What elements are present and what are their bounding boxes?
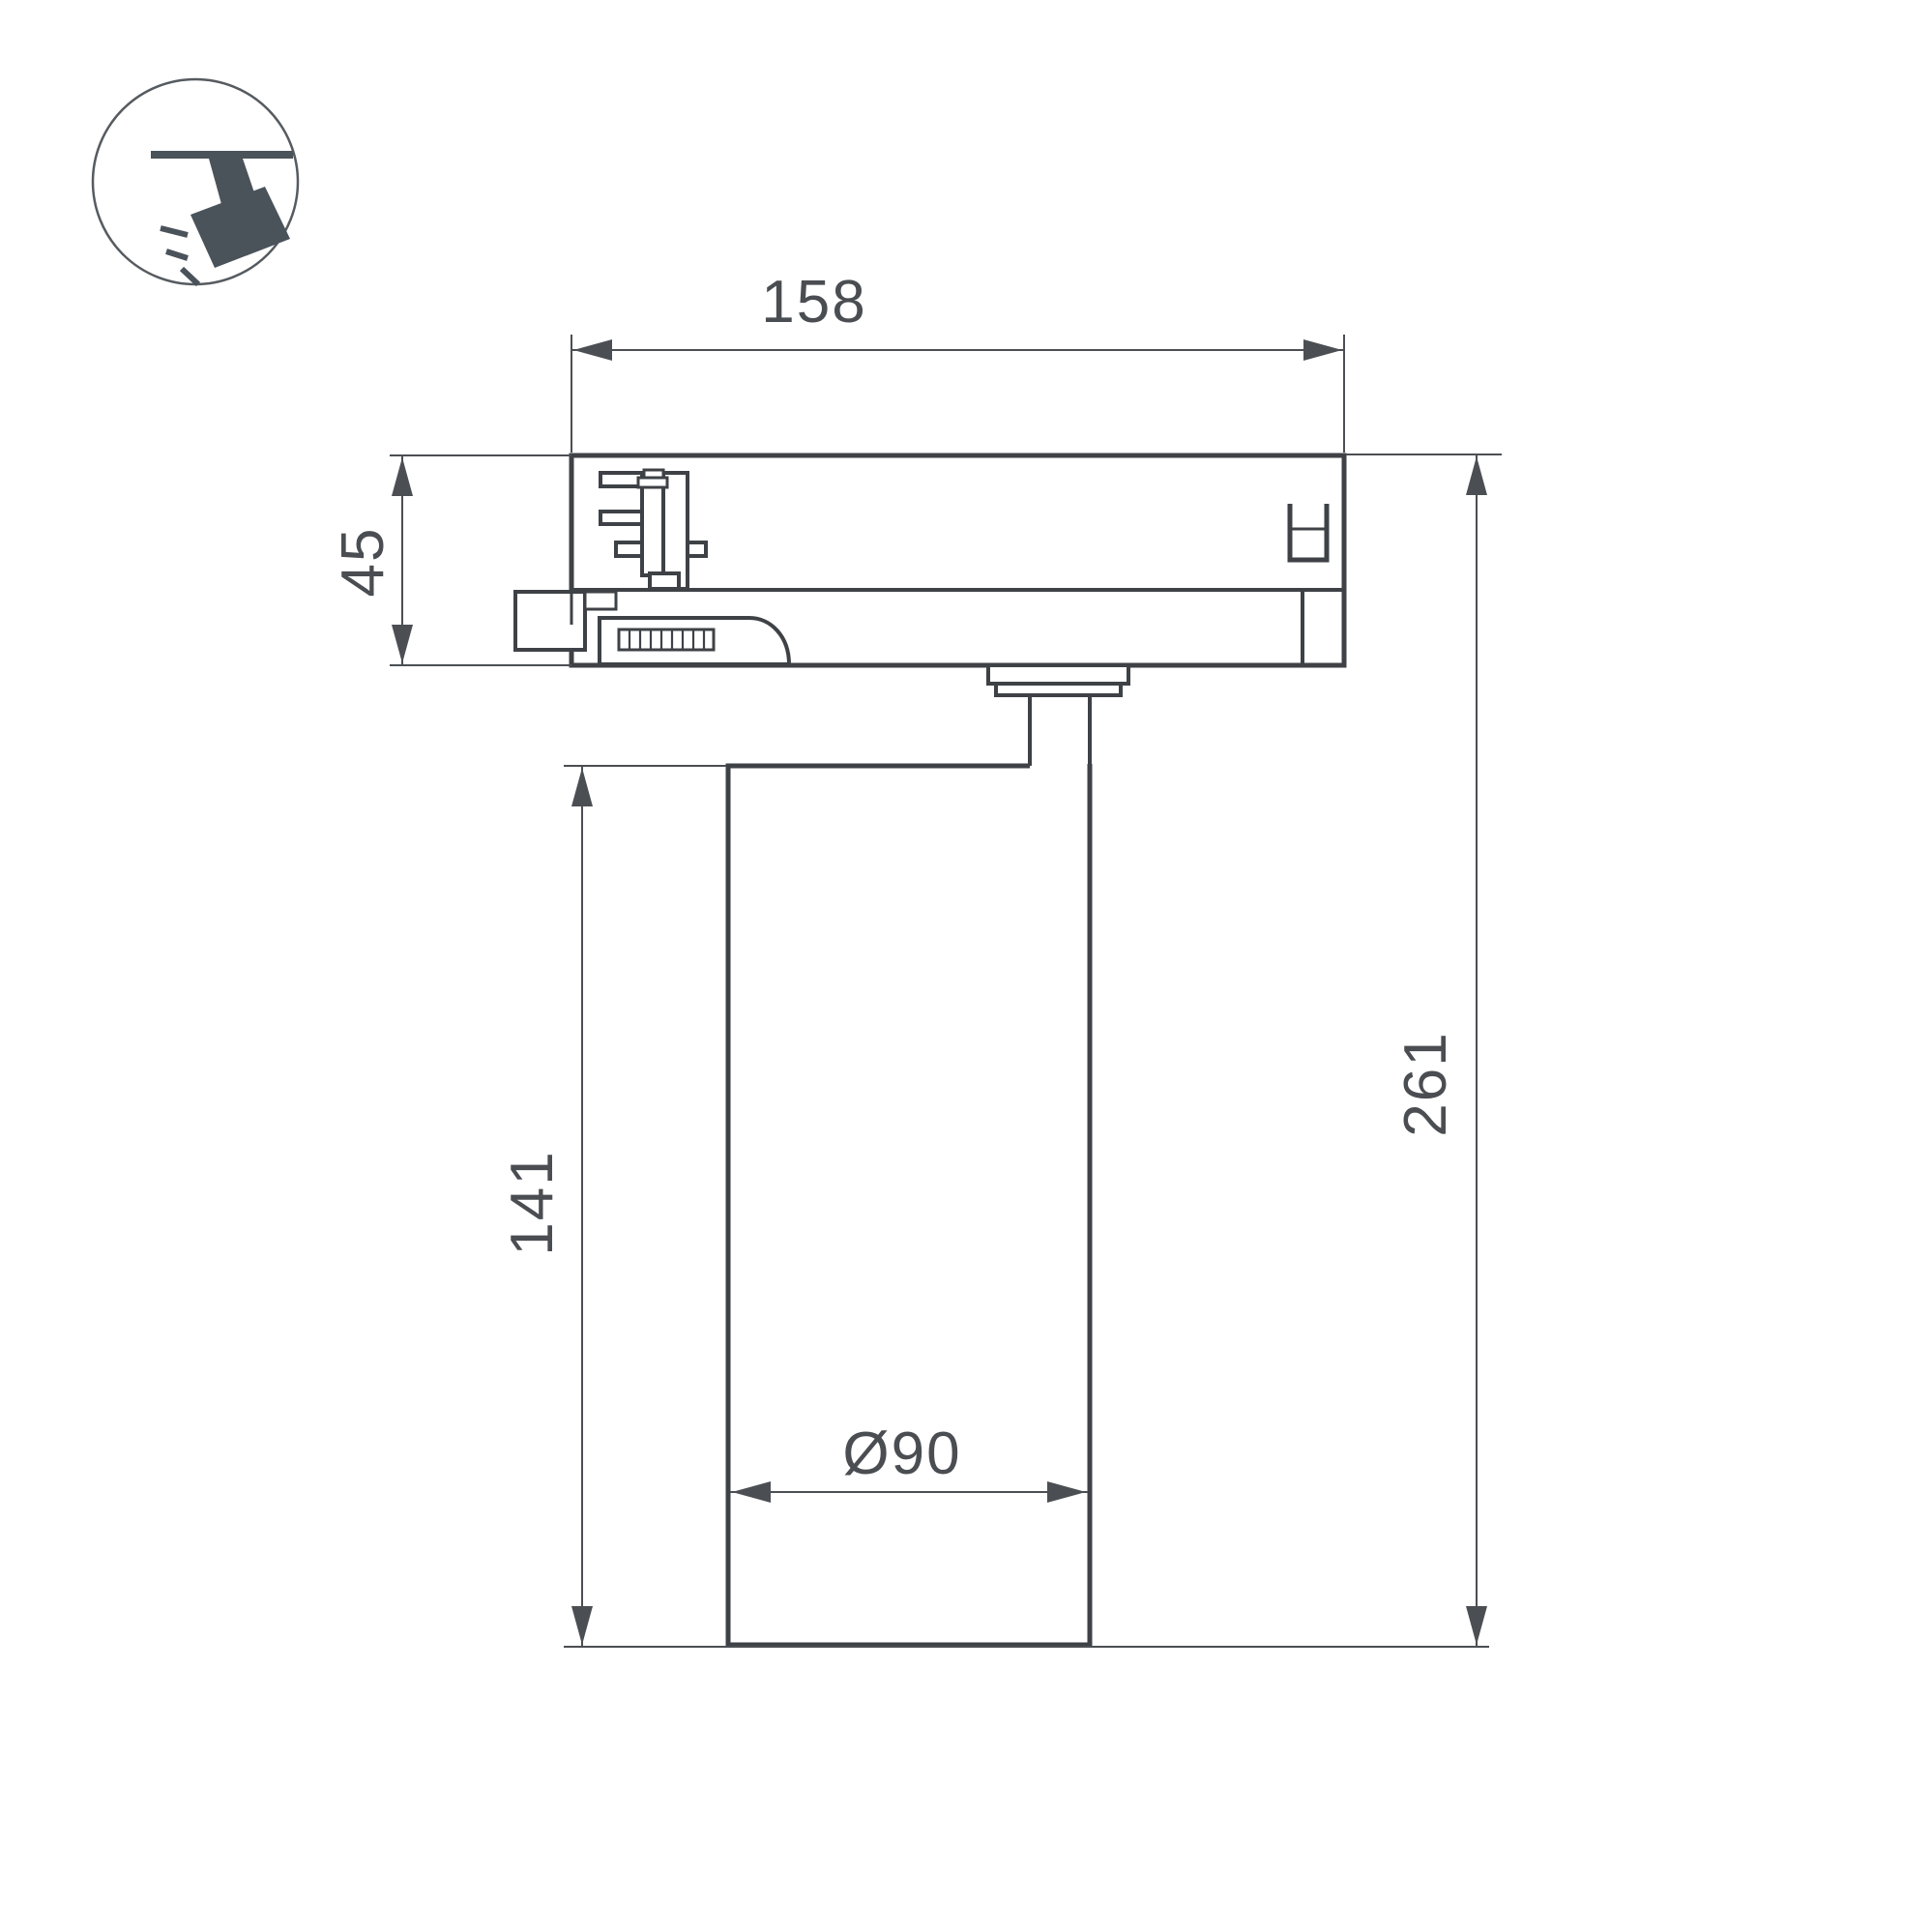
- track-light-dimension-drawing: 158 45 141 261 Ø90: [0, 0, 1932, 1932]
- contact-pin: [642, 480, 663, 575]
- arrow-down: [392, 625, 413, 663]
- icon-track-bar: [151, 151, 293, 159]
- icon-circle: [93, 79, 298, 284]
- contact-foot: [650, 573, 679, 589]
- dimension-label: 141: [499, 1150, 566, 1255]
- latch-body: [515, 592, 585, 650]
- contact-prong-right: [688, 542, 706, 556]
- arrow-left: [573, 339, 612, 361]
- arrow-right: [1303, 339, 1342, 361]
- technical-drawing-page: 158 45 141 261 Ø90: [0, 0, 1932, 1932]
- arrow-up: [571, 768, 593, 806]
- flange-step-1: [988, 665, 1128, 684]
- dimension-label: 45: [330, 527, 396, 598]
- contact-prong-lower: [616, 542, 642, 556]
- contact-prong-middle: [600, 512, 642, 524]
- lamp-body: [728, 764, 1090, 1645]
- track-spotlight-icon: [93, 79, 298, 284]
- contact-pin-cap: [638, 478, 667, 487]
- dimension-label: 261: [1392, 1031, 1459, 1136]
- flange-step-2: [996, 684, 1121, 695]
- track-adapter: [515, 455, 1344, 665]
- ribbed-dial: [619, 629, 714, 650]
- arrow-up: [1466, 456, 1487, 495]
- dimension-label: 158: [761, 269, 866, 336]
- dimension-body-height: 141: [499, 766, 726, 1646]
- dimension-total-height: 261: [1346, 454, 1502, 1646]
- latch-notch: [585, 592, 616, 609]
- arrow-down: [571, 1606, 593, 1645]
- adjuster-tray: [600, 618, 789, 664]
- arrow-down: [1466, 1606, 1487, 1645]
- dimension-adapter-width: 158: [571, 269, 1344, 453]
- dimension-label: Ø90: [842, 1420, 961, 1487]
- contact-prong-top: [600, 473, 642, 486]
- mounting-flange: [988, 665, 1128, 766]
- arrow-up: [392, 457, 413, 496]
